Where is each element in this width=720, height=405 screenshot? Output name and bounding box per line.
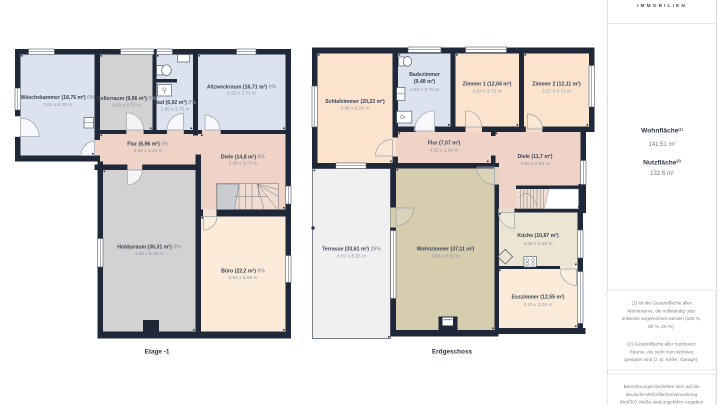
svg-text:4.52 x 3.71 m: 4.52 x 3.71 m bbox=[227, 90, 256, 96]
svg-text:2.57 x 3.70 m: 2.57 x 3.70 m bbox=[410, 87, 439, 93]
svg-text:4.66 x 8.10 m: 4.66 x 8.10 m bbox=[431, 254, 460, 260]
svg-text:141.51 m²: 141.51 m² bbox=[648, 142, 675, 148]
svg-text:4.06 x 2.63 m: 4.06 x 2.63 m bbox=[520, 161, 549, 167]
svg-text:Esszimmer (12,55 m²): Esszimmer (12,55 m²) bbox=[511, 295, 564, 301]
svg-text:Flur (6,96 m²) 0%: Flur (6,96 m²) 0% bbox=[127, 142, 169, 148]
svg-text:Wohnräume, die vollständig ode: Wohnräume, die vollständig oder bbox=[627, 308, 696, 313]
svg-text:Zimmer 1 (12,04 m²): Zimmer 1 (12,04 m²) bbox=[463, 82, 512, 88]
svg-text:4.06 x 2.69 m: 4.06 x 2.69 m bbox=[523, 241, 552, 247]
svg-text:(1) Ist die Gesamtfläche aller: (1) Ist die Gesamtfläche aller bbox=[632, 301, 692, 306]
svg-text:Diele (14,8 m²) 0%: Diele (14,8 m²) 0% bbox=[221, 155, 266, 161]
svg-text:3.27 x 3.71 m: 3.27 x 3.71 m bbox=[542, 89, 571, 95]
svg-text:50 %, 25 %).: 50 %, 25 %). bbox=[648, 324, 675, 329]
svg-text:4.69 x 1.49 m: 4.69 x 1.49 m bbox=[133, 148, 162, 154]
svg-text:Diele (11,7 m²): Diele (11,7 m²) bbox=[518, 154, 553, 160]
svg-text:IMMOBILIEN: IMMOBILIEN bbox=[637, 3, 687, 9]
svg-text:132.6 m²: 132.6 m² bbox=[650, 171, 674, 177]
svg-text:Wohnfläche(1): Wohnfläche(1) bbox=[641, 127, 683, 134]
svg-text:(WoFlV). Maße sind ungefähre A: (WoFlV). Maße sind ungefähre Angaben bbox=[620, 400, 704, 405]
svg-text:1.89 x 3.75 m: 1.89 x 3.75 m bbox=[160, 107, 189, 113]
svg-text:3.62 x 5.20 m: 3.62 x 5.20 m bbox=[43, 102, 72, 108]
svg-text:Etage -1: Etage -1 bbox=[145, 349, 170, 356]
svg-text:Küche (10,87 m²): Küche (10,87 m²) bbox=[517, 233, 559, 239]
svg-text:deutsche Wohnflächenverordnung: deutsche Wohnflächenverordnung bbox=[626, 392, 698, 397]
svg-text:2.69 x 3.72 m: 2.69 x 3.72 m bbox=[112, 103, 141, 109]
svg-text:Kellerraum (9,96 m²) 0%: Kellerraum (9,96 m²) 0% bbox=[97, 96, 156, 102]
svg-text:3.94 x 5.65 m: 3.94 x 5.65 m bbox=[228, 275, 257, 281]
svg-text:3.24 x 3.72 m: 3.24 x 3.72 m bbox=[472, 89, 501, 95]
svg-text:(9,48 m²): (9,48 m²) bbox=[414, 79, 436, 85]
svg-text:Allzweckraum (16,71 m²) 0%: Allzweckraum (16,71 m²) 0% bbox=[207, 85, 277, 91]
svg-text:(2) Gesamtfläche aller nutzbar: (2) Gesamtfläche aller nutzbaren bbox=[627, 342, 696, 347]
svg-text:Büro (22,2 m²) 0%: Büro (22,2 m²) 0% bbox=[221, 269, 265, 275]
svg-text:Nutzfläche(2): Nutzfläche(2) bbox=[643, 159, 682, 166]
svg-text:3.86 x 5.26 m: 3.86 x 5.26 m bbox=[340, 106, 369, 112]
svg-text:4.62 x 1.54 m: 4.62 x 1.54 m bbox=[429, 148, 458, 154]
svg-text:4.10 x 3.04 m: 4.10 x 3.04 m bbox=[523, 302, 552, 308]
svg-text:Räume, die nicht zum Wohnen: Räume, die nicht zum Wohnen bbox=[629, 349, 693, 354]
svg-text:Berechnungen beziehen sich auf: Berechnungen beziehen sich auf die bbox=[624, 384, 700, 389]
svg-text:Wäschekammer (18,76 m²) 0%: Wäschekammer (18,76 m²) 0% bbox=[20, 95, 94, 101]
svg-text:4.55 x 8.05 m: 4.55 x 8.05 m bbox=[134, 251, 163, 257]
svg-text:Erdgeschoss: Erdgeschoss bbox=[432, 349, 473, 356]
svg-text:teilweise angerechnet werden (: teilweise angerechnet werden (100 %, bbox=[622, 316, 701, 321]
svg-text:Badezimmer: Badezimmer bbox=[409, 72, 440, 78]
svg-text:Hobbyraum (36,31 m²) 0%: Hobbyraum (36,31 m²) 0% bbox=[117, 245, 181, 251]
svg-text:Flur (7,07 m²): Flur (7,07 m²) bbox=[428, 141, 461, 147]
svg-text:Bad (6,92 m²) 0%: Bad (6,92 m²) 0% bbox=[154, 100, 196, 106]
svg-text:Terrasse (33,61 m²) 25%: Terrasse (33,61 m²) 25% bbox=[322, 247, 381, 253]
svg-text:geeignet sind (z. B. Keller, G: geeignet sind (z. B. Keller, Garage). bbox=[624, 357, 698, 362]
svg-text:4.02 x 8.35 m: 4.02 x 8.35 m bbox=[337, 254, 366, 260]
svg-text:3.98 x 3.73 m: 3.98 x 3.73 m bbox=[228, 161, 257, 167]
svg-text:Zimmer 2 (12,11 m²): Zimmer 2 (12,11 m²) bbox=[532, 82, 581, 88]
svg-text:Schlafzimmer (20,23 m²): Schlafzimmer (20,23 m²) bbox=[325, 99, 385, 105]
svg-text:Wohnzimmer (37,11 m²): Wohnzimmer (37,11 m²) bbox=[417, 247, 475, 253]
